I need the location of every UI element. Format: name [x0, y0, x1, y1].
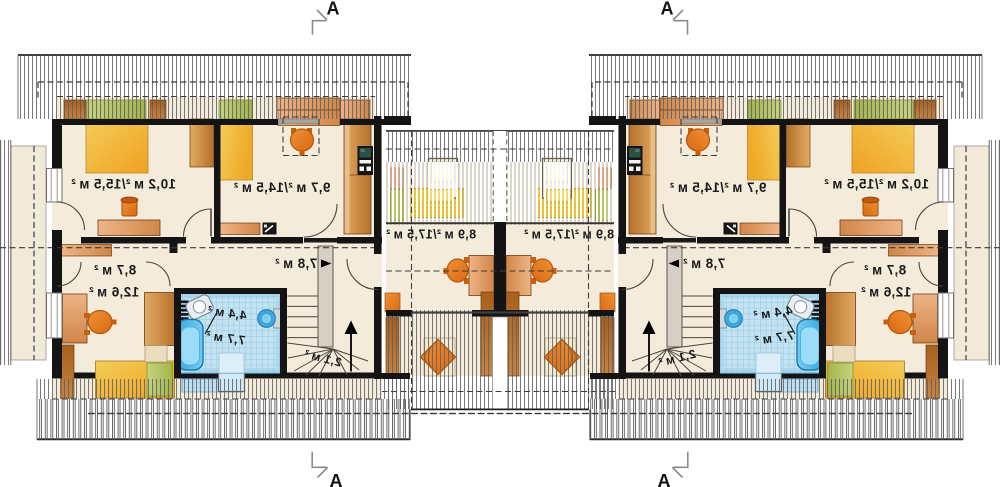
svg-text:8,9 м ²/17,5 м ²: 8,9 м ²/17,5 м ²	[386, 228, 476, 242]
svg-text:8,7 м ²: 8,7 м ²	[94, 263, 137, 278]
svg-text:A: A	[327, 0, 340, 19]
svg-text:8,9 м ²/17,5 м ²: 8,9 м ²/17,5 м ²	[524, 228, 614, 242]
svg-text:7,8 м ²: 7,8 м ²	[275, 256, 318, 271]
svg-text:A: A	[661, 0, 674, 19]
svg-text:10,2 м ²/15,5 м ²: 10,2 м ²/15,5 м ²	[824, 177, 929, 192]
svg-text:8,7 м ²: 8,7 м ²	[864, 263, 907, 278]
svg-text:A: A	[330, 471, 343, 487]
svg-text:9,7 м ²/14,5 м ²: 9,7 м ²/14,5 м ²	[669, 180, 766, 195]
svg-text:7,8 м ²: 7,8 м ²	[683, 256, 726, 271]
svg-text:10,2 м ²/15,5 м ²: 10,2 м ²/15,5 м ²	[71, 177, 176, 192]
svg-text:9,7 м ²/14,5 м ²: 9,7 м ²/14,5 м ²	[233, 180, 330, 195]
svg-text:12,6 м ²: 12,6 м ²	[89, 285, 140, 300]
svg-text:12,6 м ²: 12,6 м ²	[861, 285, 912, 300]
svg-text:A: A	[658, 471, 671, 487]
